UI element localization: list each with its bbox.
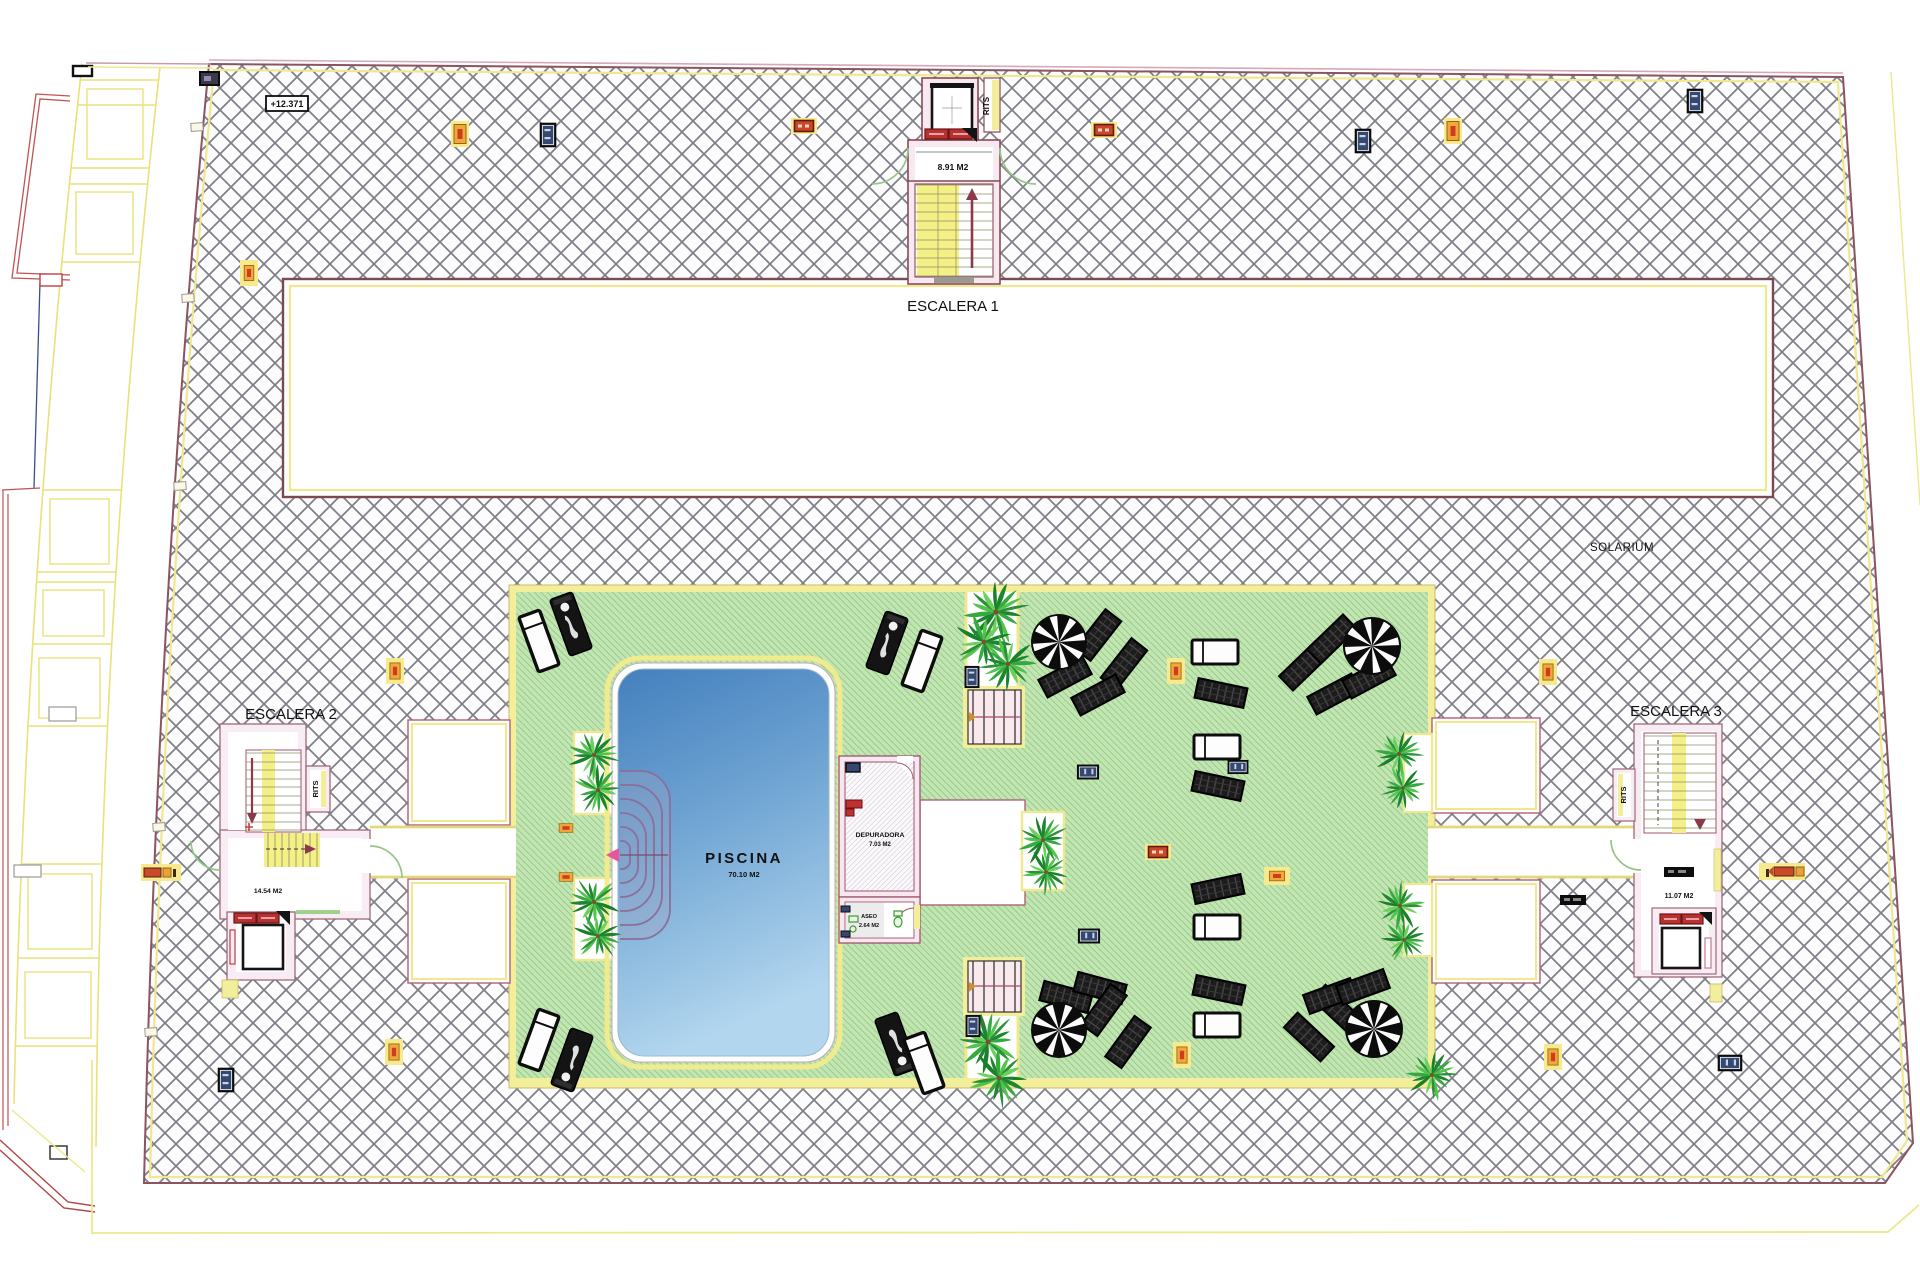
- svg-text:RITS: RITS: [1619, 786, 1628, 803]
- svg-text:2.64 M2: 2.64 M2: [859, 923, 879, 929]
- svg-text:SOLARIUM: SOLARIUM: [1590, 542, 1654, 554]
- svg-text:70.10 M2: 70.10 M2: [728, 870, 759, 879]
- svg-text:7.03 M2: 7.03 M2: [869, 842, 891, 848]
- svg-text:ESCALERA 3: ESCALERA 3: [1630, 703, 1722, 720]
- svg-text:PISCINA: PISCINA: [705, 850, 783, 867]
- svg-text:RITS: RITS: [982, 96, 991, 115]
- svg-text:DEPURADORA: DEPURADORA: [856, 832, 905, 839]
- svg-text:ESCALERA 2: ESCALERA 2: [245, 706, 337, 723]
- svg-text:14.54 M2: 14.54 M2: [254, 888, 283, 895]
- svg-text:RITS: RITS: [311, 780, 320, 797]
- svg-text:11.07 M2: 11.07 M2: [1665, 893, 1694, 900]
- svg-text:8.91 M2: 8.91 M2: [938, 162, 969, 172]
- svg-text:ESCALERA 1: ESCALERA 1: [907, 298, 999, 315]
- svg-text:ASEO: ASEO: [861, 914, 878, 920]
- svg-text:+12.371: +12.371: [271, 99, 304, 109]
